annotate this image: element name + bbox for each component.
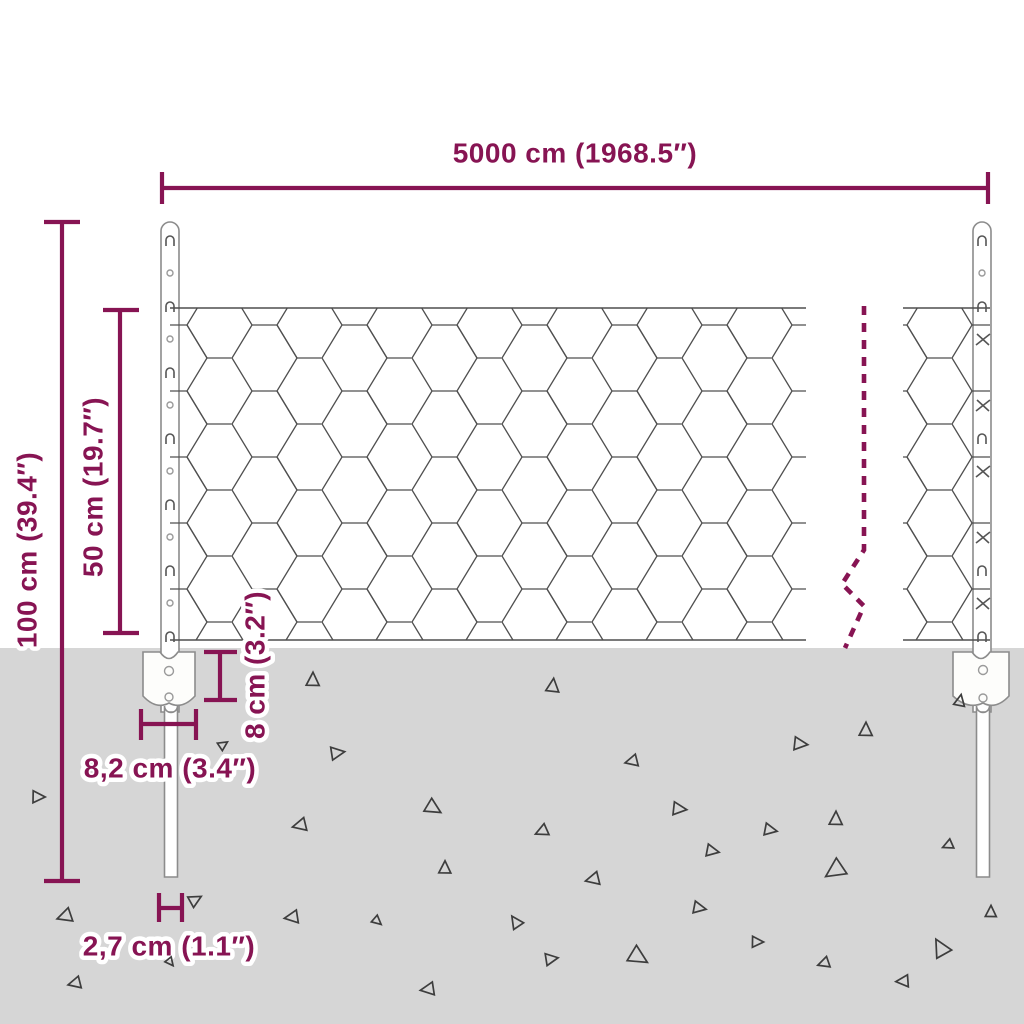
total-width-label: 5000 cm (1968.5″) <box>453 138 698 169</box>
wire-mesh-right <box>903 308 990 640</box>
post-height-label: 100 cm (39.4″) <box>12 452 43 648</box>
left-anchor-bracket <box>143 652 195 705</box>
fence-diagram: 5000 cm (1968.5″) 100 cm (39.4″) 50 cm (… <box>0 0 1024 1024</box>
dimension-mesh-height: 50 cm (19.7″) <box>78 310 140 633</box>
dimension-total-width: 5000 cm (1968.5″) <box>162 138 988 205</box>
anchor-height-label: 8 cm (3.2″) <box>240 591 271 739</box>
post-width-label: 2,7 cm (1.1″) <box>83 931 255 962</box>
mesh-height-label: 50 cm (19.7″) <box>78 397 109 577</box>
wire-mesh-left <box>170 308 806 640</box>
diagram-canvas: 5000 cm (1968.5″) 100 cm (39.4″) 50 cm (… <box>0 0 1024 1024</box>
break-line <box>842 306 864 648</box>
anchor-width-label: 8,2 cm (3.4″) <box>84 753 256 784</box>
